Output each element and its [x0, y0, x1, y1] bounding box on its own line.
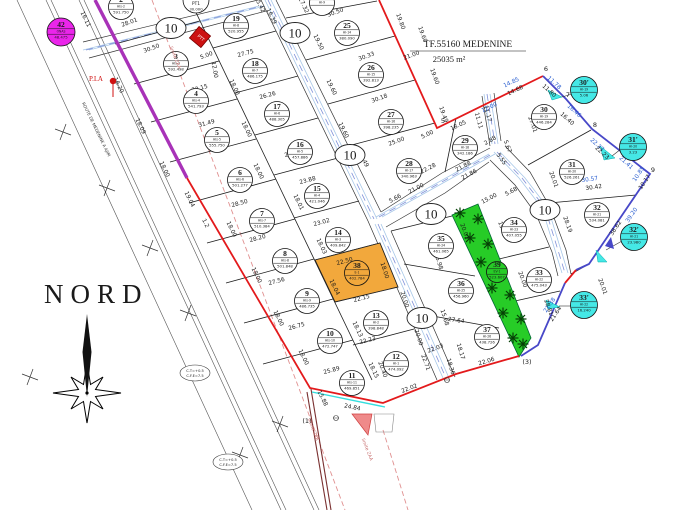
lot-number: 31'	[628, 135, 638, 144]
lot-number: 33	[535, 268, 543, 277]
lot-code: HI-24	[437, 244, 445, 248]
lot-code: HI-2	[373, 321, 379, 325]
lot-area: 461.065	[433, 249, 449, 254]
lot-number: 28	[405, 159, 413, 168]
lot-area: 340.963	[401, 174, 417, 179]
lot-code: HIs-6	[236, 178, 244, 182]
dim-label: 18.00	[225, 221, 238, 239]
dim-label: 27.56	[268, 277, 286, 287]
lot-area: 510.384	[254, 224, 270, 229]
lot-area: 474.092	[388, 367, 404, 372]
parcel-boundary-blue	[521, 283, 565, 356]
lot-boundary-line	[499, 247, 549, 259]
level-note-line2: C.F.E=7.5	[219, 463, 236, 467]
dim-label: 11.11	[473, 112, 483, 130]
lot-area: 23.980	[627, 240, 641, 245]
dim-label: 28.50	[231, 199, 249, 209]
lot-code: HI-19	[540, 115, 548, 119]
dim-label: 22.23	[359, 336, 377, 346]
dim-label: 30.33	[358, 51, 376, 62]
lot-code: HI-14	[343, 31, 351, 35]
access-triangle-marker	[352, 414, 372, 435]
road-width-label: 10	[539, 203, 552, 218]
lot-number: 42	[57, 20, 65, 29]
dim-label: 31.49	[198, 119, 216, 129]
lot-code: HI-21	[593, 213, 601, 217]
lot-number: 26	[367, 63, 375, 72]
lot-area: 398.235	[383, 125, 399, 130]
dim-label: 16.11	[79, 11, 92, 29]
level-note-line1: C.T=+0.5	[219, 458, 237, 462]
lot-area: 486.735	[299, 304, 315, 309]
dim-label: 19.80	[394, 13, 405, 31]
dim-label: 18.00	[240, 121, 253, 139]
lot-number: 6	[238, 168, 242, 177]
lot-code: HI-23	[510, 228, 518, 232]
parcel-boundary-red	[379, 0, 543, 128]
dim-label: 2.88	[483, 135, 497, 147]
dim-label: 18.00	[252, 163, 265, 181]
lot-number: 15	[313, 184, 321, 193]
lot-code: HI-15	[367, 73, 375, 77]
boundary-point-label: 5	[441, 117, 445, 125]
lot-area: 446.284	[536, 120, 552, 125]
lot-area: 457.886	[292, 155, 308, 160]
lot-area: 438.726	[479, 340, 495, 345]
lot-number: 19	[232, 14, 240, 23]
lot-code: EV-1	[494, 270, 501, 274]
lot-number: 4	[194, 89, 198, 98]
dim-label: 26.75	[288, 322, 306, 332]
dim-label: 18.13	[351, 321, 364, 339]
lot-code: HIs-11	[347, 381, 357, 385]
lot-code: HI-4	[314, 194, 320, 198]
survey-cross-icon	[147, 240, 153, 256]
dim-label: 12.00	[210, 61, 219, 79]
boundary-point-label: 6	[544, 65, 548, 73]
lot-number: 30	[540, 105, 548, 114]
plan-title: TF.55160 MEDENINE	[424, 40, 513, 50]
lot-number: 30'	[579, 78, 589, 87]
lot-code: HI-25	[457, 289, 465, 293]
lot-code: E-1	[354, 271, 359, 275]
road-width-label: 10	[425, 207, 438, 222]
lot-code: HIs-2	[117, 5, 125, 9]
lot-number: 31	[568, 160, 576, 169]
lot-area: 591.750	[113, 10, 129, 15]
parcel-boundary-maroon	[307, 392, 327, 510]
lot-area: 488.305	[269, 117, 285, 122]
pt1-area: 30.000	[189, 7, 203, 12]
dim-label: 30.50	[143, 43, 161, 54]
lot-number: 27	[387, 110, 395, 119]
lot-code: HIs-8	[281, 259, 289, 263]
dim-label: 24.84	[343, 403, 361, 412]
lot-code: HI-9	[319, 1, 325, 5]
lot-number: 36	[457, 279, 465, 288]
lot-area: 501.848	[277, 264, 293, 269]
lot-code: HI-7	[252, 69, 258, 73]
dim-label: 27.75	[237, 49, 255, 59]
dim-label: 23.02	[313, 218, 331, 228]
dim-label: 20.00	[413, 329, 424, 347]
survey-cross-icon	[60, 124, 66, 140]
lot-code: HI-21	[630, 235, 638, 239]
lot-number: 32'	[629, 225, 639, 234]
lot-number: 7	[260, 209, 264, 218]
dim-label: 20.01	[596, 278, 607, 296]
dim-label: 5.00	[200, 51, 214, 61]
lot-area: 342.186	[457, 151, 473, 156]
lot-number: 38	[353, 261, 361, 270]
dim-label: 30.57	[581, 176, 599, 184]
lot-area: 541.793	[188, 104, 204, 109]
lot-number: 14	[334, 228, 342, 237]
level-note-line2: C.F.E=7.5	[186, 374, 203, 378]
lot-code: HI-22	[535, 278, 543, 282]
dim-label: 5.00	[420, 130, 435, 141]
dim-label: 25.00	[388, 136, 406, 147]
lot-number: 18	[251, 59, 259, 68]
lot-area: 407.055	[506, 233, 522, 238]
lot-number: 33'	[579, 293, 589, 302]
lot-boundary-line	[549, 195, 636, 203]
lot-area: 402.784	[349, 276, 365, 281]
pia-dot	[110, 78, 116, 84]
dim-label: 18.00	[297, 349, 310, 367]
lot-number: 29	[461, 136, 469, 145]
lot-area: 3.23	[629, 150, 638, 155]
limite-zaa-dashed-line	[383, 430, 408, 510]
level-note-ellipse	[213, 454, 243, 470]
dim-label: 15.00	[481, 192, 499, 205]
dim-label: 18.00	[158, 161, 171, 179]
lot-code: HI-16	[387, 120, 395, 124]
dim-label: 5.67	[502, 140, 512, 154]
lot-number: 39	[493, 260, 501, 269]
road-edge-line	[381, 148, 490, 212]
dim-label: 18.00	[228, 79, 241, 97]
dim-label: 19.60	[428, 68, 439, 86]
north-label: NORD	[44, 279, 149, 309]
lot-area: 392.813	[363, 78, 379, 83]
lot-area: 501.277	[232, 183, 248, 188]
lot-area: 421.046	[309, 199, 325, 204]
lot-area: 523.607	[489, 275, 505, 280]
lot-code: HIs-7	[258, 219, 266, 223]
level-note-ellipse	[180, 365, 210, 381]
dim-label: 22.71	[419, 354, 430, 372]
lot-area: 526.261	[564, 175, 580, 180]
lot-number: 11	[348, 371, 355, 380]
lot-number: 2	[119, 0, 123, 4]
dim-label: 21.00	[403, 50, 421, 61]
lot-number: 34	[510, 218, 518, 227]
dim-label: 30.42	[585, 184, 603, 192]
dim-label: 5.68	[504, 186, 518, 198]
lot-number: 9	[305, 289, 309, 298]
dim-label: 18.05	[450, 120, 468, 133]
lot-area: 475.043	[531, 283, 547, 288]
lot-code: HIs-10	[325, 339, 335, 343]
lot-code: HI-20	[629, 145, 637, 149]
plan-area-total: 25035 m²	[433, 54, 466, 64]
lot-area: 486.175	[247, 74, 263, 79]
lot-area: 520.955	[228, 29, 244, 34]
road-width-label: 10	[344, 148, 357, 163]
dim-label: 18.17	[455, 343, 466, 361]
lot-area: 48.475	[54, 35, 68, 40]
boundary-point-label: 7	[566, 91, 570, 99]
lot-code: HIs-4	[192, 99, 200, 103]
lot-boundary-line	[235, 76, 298, 93]
lot-code: HI-3	[335, 238, 341, 242]
lot-code: HI-22	[580, 303, 588, 307]
dim-label: 22.03	[427, 343, 445, 354]
lot-area: 456.960	[453, 294, 469, 299]
lot-code: HI-18	[461, 146, 469, 150]
dim-label: 19.60	[325, 79, 338, 97]
dim-label: 21.00	[408, 182, 426, 195]
dim-label: 26.26	[259, 91, 277, 101]
lot-number: 10	[326, 329, 334, 338]
lot-area: 16.240	[577, 308, 591, 313]
lot-code: HI-1	[393, 362, 399, 366]
dim-label: 15.88	[316, 390, 329, 408]
dim-label: 18.01	[292, 194, 305, 212]
boundary-point-label: (3)	[522, 358, 531, 366]
lot-boundary-line	[528, 130, 591, 165]
cadastral-plan-canvas: 16.1116.2018.0918.0019.041.218.0018.0018…	[0, 0, 680, 510]
lot-area: 409.842	[330, 243, 346, 248]
lot-code: HI-20	[568, 170, 576, 174]
lot-number: 12	[392, 352, 400, 361]
dim-label: 5.55	[495, 152, 507, 166]
lot-number: 37	[483, 325, 491, 334]
lot-number: 25	[343, 21, 351, 30]
lot-area: 472.747	[322, 344, 338, 349]
lot-area: 534.081	[589, 218, 605, 223]
lot-number: 8	[283, 249, 287, 258]
lot-code: HI-5	[297, 150, 303, 154]
lot-number: 16	[296, 140, 304, 149]
road-width-label: 10	[416, 311, 429, 326]
dim-label: 18.09	[134, 118, 147, 136]
lot-number: 32	[593, 203, 601, 212]
lot-number: 35	[437, 234, 445, 243]
lot-area: 469.851	[344, 386, 360, 391]
road-width-label: 10	[165, 21, 178, 36]
lot-boundary-line	[226, 259, 314, 283]
dim-label: 19.60	[337, 122, 350, 140]
dim-label: 16.39	[265, 8, 278, 26]
site-plan-sheet: 16.1116.2018.0918.0019.041.218.0018.0018…	[0, 0, 680, 510]
pia-label: P.I.A	[89, 75, 103, 83]
lot-code: HI-8	[233, 24, 239, 28]
limite-zaa-label: limite ZAA	[360, 438, 375, 463]
dim-label: 20.01	[547, 171, 558, 189]
lot-code: ONAS	[57, 30, 66, 34]
lot-code: HIs-9	[303, 299, 311, 303]
dim-label: 28.19	[561, 216, 572, 234]
lot-code: HI-6	[274, 112, 280, 116]
boundary-point-label: 9	[651, 166, 655, 174]
level-note-line1: C.T=+0.5	[186, 369, 204, 373]
boundary-point-label: 8	[593, 121, 597, 129]
dim-label: 19.04	[183, 191, 196, 209]
dim-label: 20.00	[399, 291, 410, 309]
parcel-boundary-maroon	[311, 389, 331, 510]
lot-code: HI-26	[483, 335, 491, 339]
lot-code: HIs-5	[213, 138, 221, 142]
lot-area: 398.848	[368, 326, 384, 331]
dim-label: 28.20	[249, 234, 267, 244]
lot-number: 17	[273, 102, 281, 111]
dim-label: 19.50	[312, 34, 325, 52]
lot-area: 5.06	[580, 93, 589, 98]
dim-label: 17.32	[297, 0, 310, 15]
lot-number: 5	[215, 128, 219, 137]
marker-rect	[374, 414, 394, 432]
dim-label: 20.00	[516, 271, 527, 289]
lot-code: HI-19	[580, 88, 588, 92]
dim-label: 25.89	[323, 366, 341, 376]
dim-label: 1.2	[200, 218, 210, 229]
compass-center	[85, 391, 88, 394]
cyan-sliver-lot	[596, 250, 607, 262]
lot-code: HI-17	[405, 169, 413, 173]
lot-area: 555.750	[209, 143, 225, 148]
lot-number: 13	[372, 311, 380, 320]
dim-label: 39.20	[625, 207, 639, 224]
road-width-label: 10	[289, 26, 302, 41]
survey-cross-icon	[27, 369, 33, 385]
survey-cross-icon	[104, 180, 110, 196]
lot-area: 380.090	[339, 36, 355, 41]
dim-label: 18.36	[445, 358, 456, 376]
dim-label: 30.18	[371, 93, 389, 104]
dim-label: 22.28	[420, 162, 438, 175]
